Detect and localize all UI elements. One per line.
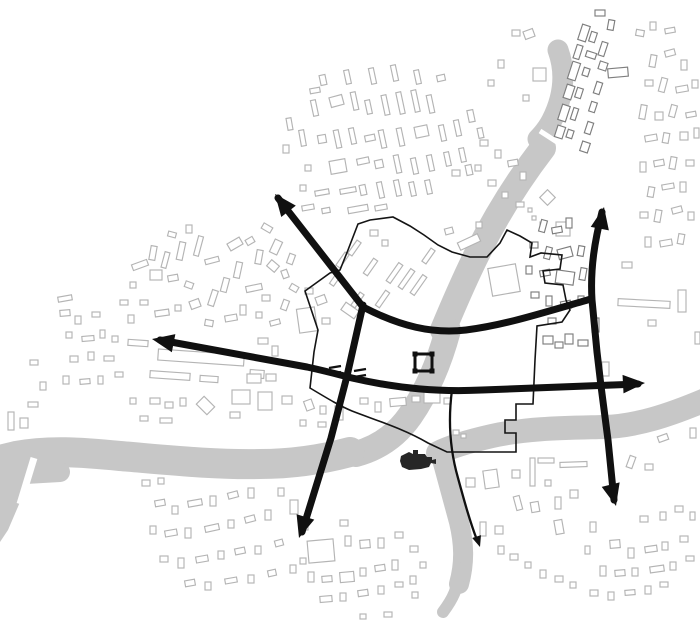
building [75, 316, 81, 324]
building [531, 292, 539, 298]
building [655, 112, 663, 120]
building [395, 532, 403, 538]
building [628, 548, 634, 558]
building [196, 555, 209, 563]
building [100, 330, 105, 338]
building [650, 565, 665, 573]
building [533, 68, 546, 81]
building [283, 145, 289, 153]
building [160, 418, 172, 423]
building [528, 208, 532, 212]
building [645, 464, 653, 470]
building [476, 222, 482, 228]
building [340, 593, 346, 601]
building [686, 160, 694, 166]
building [608, 67, 629, 78]
building [645, 80, 653, 86]
building [636, 29, 645, 36]
building [282, 396, 292, 404]
building [579, 268, 587, 281]
building [615, 570, 625, 577]
building [218, 551, 224, 559]
building [690, 428, 696, 438]
building [255, 546, 261, 554]
building [165, 529, 178, 537]
building [178, 558, 184, 568]
building [378, 538, 384, 548]
building [512, 470, 520, 478]
building [290, 500, 298, 514]
kremlin-tower-icon [413, 352, 418, 357]
building [345, 536, 351, 546]
building [130, 398, 136, 404]
building [480, 140, 488, 146]
building [555, 342, 563, 348]
building [60, 310, 70, 317]
building [465, 164, 473, 175]
building [247, 374, 261, 383]
building [498, 546, 504, 554]
building [248, 575, 254, 583]
building [578, 340, 588, 346]
building [555, 576, 563, 582]
building [640, 162, 646, 172]
building [80, 379, 90, 385]
building [278, 488, 284, 496]
building [694, 128, 699, 138]
building [570, 582, 576, 588]
building [150, 526, 156, 534]
building [640, 516, 648, 522]
building [695, 332, 700, 344]
building [662, 133, 670, 144]
building [300, 185, 306, 191]
building [680, 536, 688, 542]
building [8, 412, 14, 430]
building [92, 312, 100, 317]
building [692, 80, 698, 88]
building [512, 30, 520, 36]
building [28, 402, 38, 407]
building [502, 192, 508, 198]
building [444, 227, 453, 235]
building [340, 571, 355, 582]
building [675, 506, 683, 512]
building [436, 74, 445, 82]
building [610, 540, 621, 549]
building [595, 10, 605, 16]
city-axes-map [0, 0, 700, 635]
building [510, 554, 518, 560]
building [200, 375, 218, 382]
building [370, 230, 378, 236]
building [329, 159, 347, 175]
building [508, 159, 519, 167]
building [560, 462, 587, 468]
building [590, 590, 598, 596]
building [452, 170, 460, 176]
river-band [0, 452, 350, 464]
building [360, 568, 366, 576]
building [523, 95, 529, 101]
building [382, 240, 388, 246]
building [359, 184, 367, 195]
building [234, 547, 245, 555]
building [180, 398, 186, 406]
building [545, 480, 551, 486]
building [645, 237, 651, 247]
building [453, 430, 459, 435]
building [360, 398, 368, 404]
building [265, 510, 271, 520]
building [686, 556, 694, 561]
building [266, 374, 276, 381]
building [412, 396, 420, 402]
building [185, 528, 191, 538]
building [660, 239, 673, 247]
building [608, 592, 614, 600]
building [654, 210, 662, 223]
building [30, 360, 38, 365]
building [414, 125, 429, 138]
map-canvas [0, 0, 700, 635]
building [555, 497, 561, 509]
building [677, 234, 685, 245]
building [186, 225, 192, 233]
building [566, 218, 572, 228]
building [155, 309, 170, 317]
building [395, 582, 403, 587]
building [688, 212, 694, 220]
building [322, 207, 331, 213]
building [128, 339, 148, 346]
building [475, 165, 481, 171]
building [530, 501, 540, 512]
building [155, 499, 166, 507]
building [585, 546, 590, 554]
building [384, 612, 392, 617]
building [554, 519, 564, 534]
building [267, 569, 276, 577]
building [308, 572, 314, 582]
building [248, 488, 254, 498]
building [150, 270, 162, 280]
building [680, 182, 686, 192]
building [320, 406, 326, 414]
building [168, 274, 179, 282]
building [70, 356, 78, 362]
building [150, 398, 160, 404]
building [495, 150, 501, 158]
building [88, 352, 94, 360]
building [322, 318, 330, 324]
building [600, 566, 606, 576]
building [662, 542, 668, 550]
building [540, 570, 546, 578]
building [488, 80, 494, 86]
building [565, 334, 573, 344]
building [40, 382, 46, 390]
building [274, 539, 283, 547]
building [160, 556, 168, 562]
building [172, 506, 178, 514]
building [375, 564, 386, 571]
building [654, 159, 665, 167]
building [158, 478, 164, 484]
building [320, 595, 332, 602]
building [495, 526, 503, 534]
building [647, 187, 655, 198]
building [645, 545, 658, 553]
building [225, 314, 238, 322]
building [678, 290, 686, 312]
building [340, 520, 348, 526]
building [498, 60, 504, 68]
building [140, 300, 148, 305]
kremlin-tower-icon [430, 352, 435, 357]
building [63, 376, 69, 384]
building [128, 315, 134, 323]
building [660, 512, 666, 520]
building [488, 264, 520, 296]
building [546, 296, 552, 306]
building [262, 295, 270, 301]
building [670, 562, 676, 570]
building [649, 55, 657, 68]
building [648, 320, 656, 326]
building [322, 576, 332, 583]
building [538, 458, 554, 463]
building [305, 165, 311, 171]
building [392, 560, 398, 570]
building [319, 74, 327, 85]
building [82, 335, 94, 341]
building [66, 332, 72, 338]
kremlin-tower-icon [430, 369, 435, 374]
building [98, 376, 103, 384]
building [640, 212, 648, 218]
building [577, 246, 585, 257]
building [520, 172, 526, 180]
building [230, 412, 240, 418]
building [466, 478, 475, 487]
building [140, 416, 148, 421]
building [232, 390, 250, 404]
building [258, 338, 268, 344]
building [410, 546, 418, 552]
building [228, 520, 234, 528]
building [360, 540, 371, 549]
building [272, 346, 278, 356]
building [374, 159, 383, 168]
building [185, 579, 196, 587]
building [461, 434, 466, 438]
building [307, 539, 335, 563]
building [112, 336, 118, 342]
building [590, 522, 596, 532]
building [598, 61, 608, 71]
building [375, 402, 381, 412]
building [526, 266, 532, 274]
building [104, 356, 114, 361]
building [364, 134, 375, 142]
building [115, 372, 123, 377]
building [358, 589, 369, 596]
building [256, 312, 262, 318]
building [483, 469, 499, 489]
building [378, 586, 384, 594]
building [130, 282, 136, 288]
building [530, 458, 535, 486]
building [205, 319, 214, 326]
building [681, 60, 687, 70]
building [516, 202, 524, 207]
building [690, 512, 695, 520]
building [645, 586, 651, 594]
building [210, 496, 216, 506]
building [543, 336, 553, 344]
building [360, 614, 366, 619]
building [20, 418, 28, 428]
building [607, 20, 615, 31]
building [258, 392, 272, 410]
building [290, 565, 296, 573]
building [390, 397, 407, 406]
building [552, 226, 563, 234]
building [632, 568, 638, 576]
building [480, 522, 486, 536]
building [317, 134, 326, 143]
building [625, 590, 635, 596]
building [318, 422, 326, 427]
building [676, 85, 689, 93]
building [622, 262, 632, 268]
building [420, 562, 426, 568]
building [555, 270, 575, 285]
building [240, 305, 246, 315]
building [686, 111, 697, 118]
building [645, 134, 658, 142]
building [165, 402, 173, 408]
building [175, 305, 181, 311]
building [205, 582, 211, 590]
building [410, 576, 416, 584]
building [669, 157, 677, 170]
building [525, 562, 531, 568]
building [300, 558, 306, 564]
building [570, 490, 578, 498]
building [120, 300, 128, 305]
building [650, 22, 656, 30]
building [665, 27, 676, 34]
kremlin-tower-icon [413, 369, 418, 374]
building [488, 180, 496, 186]
building [310, 87, 321, 94]
building [412, 592, 418, 598]
building [680, 132, 688, 140]
building [142, 480, 150, 486]
building [660, 582, 668, 587]
building [532, 216, 536, 220]
building [300, 420, 306, 426]
